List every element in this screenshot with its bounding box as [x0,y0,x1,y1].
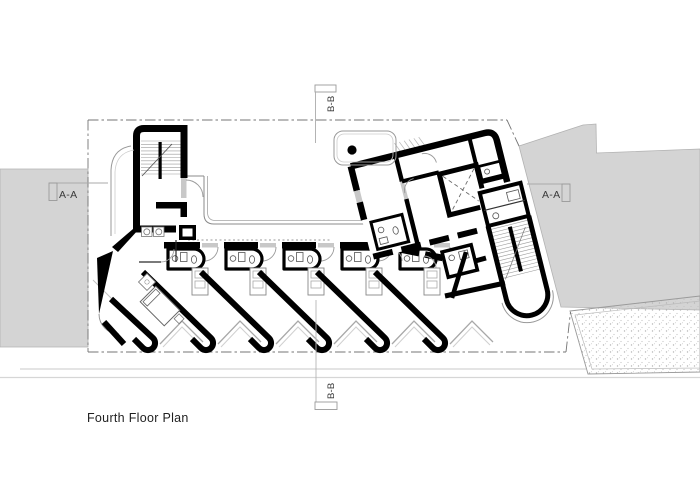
bathroom-pod [226,249,262,269]
door-sill [202,243,218,248]
door-sill [181,178,187,198]
wing-bathroom-pod [371,214,409,249]
wardrobe [192,268,208,295]
section-label-bb-bottom: B-B [326,383,337,399]
wardrobe [424,268,440,295]
door-sill [318,243,334,248]
section-label-aa-left: A-A [59,189,77,201]
bathroom-pod [284,249,320,269]
door-sill [260,243,276,248]
floor-plan-sheet: A-A A-A B-B B-B Fourth Floor Plan [0,0,700,495]
section-label-aa-right: A-A [542,189,560,201]
stair-annex-room [480,183,529,226]
wardrobe [250,268,266,295]
section-label-bb-top: B-B [326,96,337,112]
wardrobe [308,268,324,295]
column [347,145,356,154]
plan-title: Fourth Floor Plan [87,411,189,425]
stair-handrail [159,142,162,179]
section-flag-bb-bottom [315,402,337,410]
section-flag-bb-top [315,85,336,92]
wardrobe [366,268,382,295]
